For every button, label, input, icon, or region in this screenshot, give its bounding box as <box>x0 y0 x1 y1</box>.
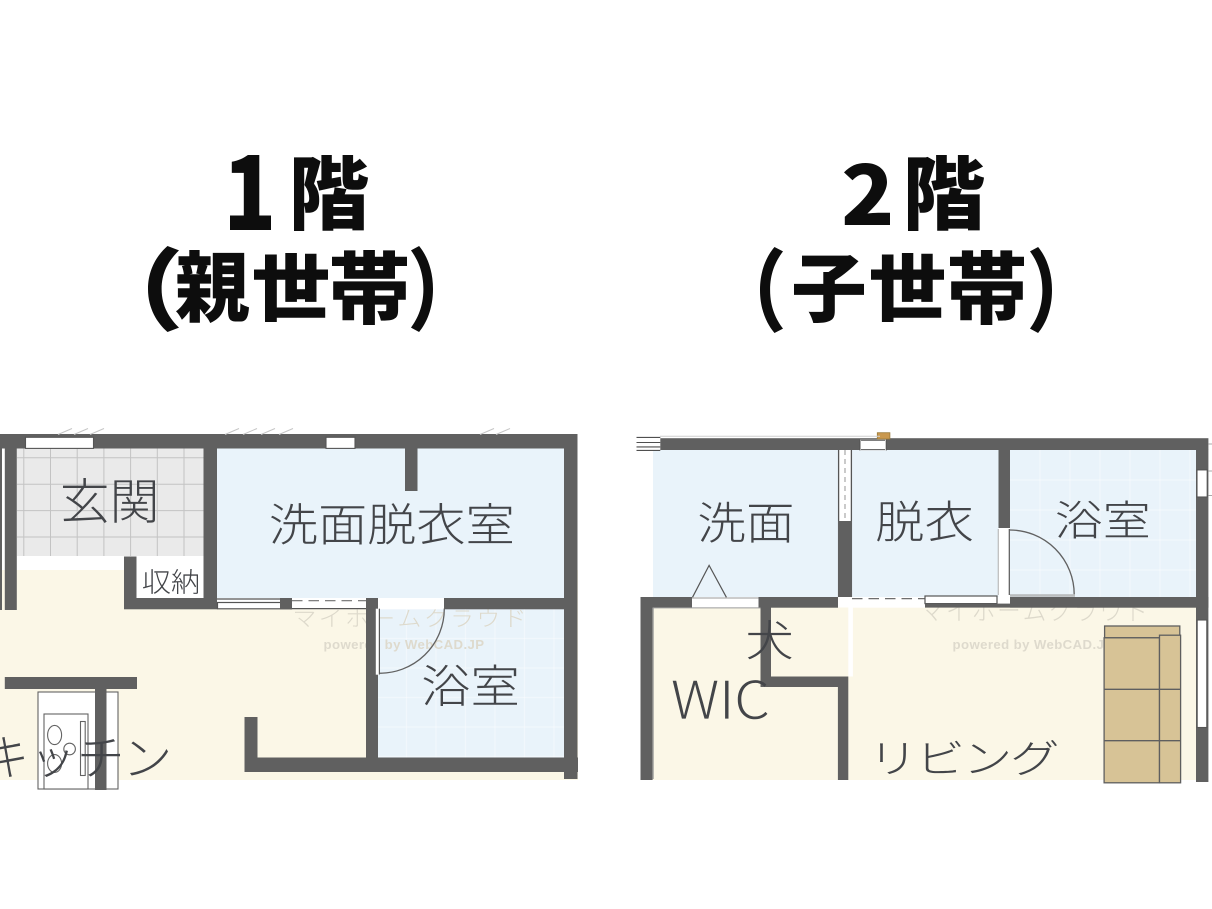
svg-text:powered by WebCAD.JP: powered by WebCAD.JP <box>324 637 485 652</box>
svg-text:powered by WebCAD.JP: powered by WebCAD.JP <box>953 637 1114 652</box>
